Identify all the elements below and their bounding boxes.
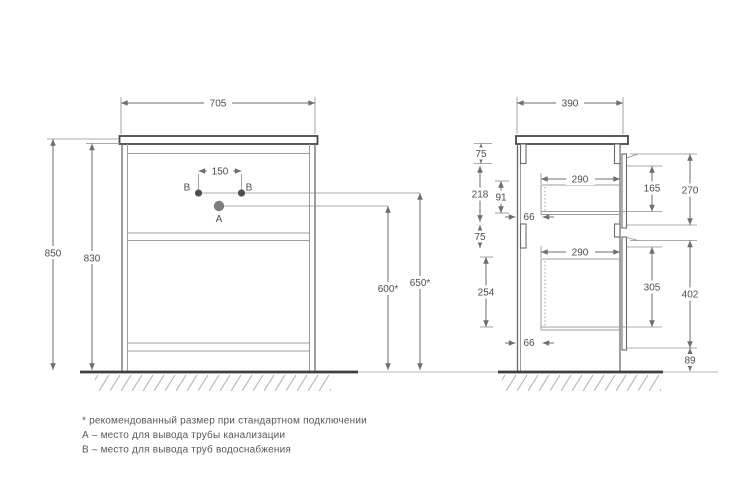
dim-upper-front-inner: 165 [621, 166, 665, 212]
dim-label-650: 650* [410, 278, 431, 289]
dim-label-66-top: 66 [523, 212, 535, 223]
side-countertop [516, 136, 628, 144]
dim-drain-height: 600* [373, 206, 403, 370]
dim-label-600: 600* [378, 284, 399, 295]
floor-line [80, 372, 718, 391]
ground-hatching-side [502, 374, 661, 391]
dim-label-150: 150 [212, 167, 229, 178]
dim-label-402: 402 [682, 290, 699, 301]
dim-label-75-top: 75 [475, 149, 487, 160]
side-rail-top-right [615, 144, 621, 164]
dim-supply-height: 650* [405, 193, 435, 370]
dim-bottom-gap: 89 [681, 348, 700, 371]
outlet-points: В В А [184, 183, 420, 226]
dim-outlet-spacing: 150 [199, 165, 242, 189]
vanity-dimension-drawing: 705 850 830 150 В В А 600* 650* [0, 0, 750, 500]
ground-hatching-front [95, 374, 331, 391]
point-b-right-marker [238, 189, 245, 196]
dim-top-rail: 75 [473, 144, 492, 164]
point-b-left-marker [195, 189, 202, 196]
dim-label-290-bottom: 290 [572, 248, 589, 259]
dim-label-165: 165 [644, 184, 661, 195]
dim-offset-lower: 66 [505, 338, 554, 349]
side-rail-mid-left [521, 224, 527, 248]
dim-label-218: 218 [472, 190, 489, 201]
point-b-left-label: В [184, 183, 191, 194]
dim-label-390: 390 [562, 99, 579, 110]
dim-lower-front: 402 [627, 241, 703, 349]
dim-mid-rail: 75 [472, 225, 488, 248]
dim-upper-drawer-depth: 290 [541, 173, 620, 186]
dim-label-830: 830 [84, 254, 101, 265]
point-a-label: А [216, 214, 223, 225]
dim-label-290-top: 290 [572, 175, 589, 186]
dim-label-305: 305 [644, 283, 661, 294]
dim-label-75-mid: 75 [474, 232, 486, 243]
dim-label-254: 254 [478, 288, 495, 299]
side-rail-top-left [521, 144, 527, 164]
lower-drawer-front [622, 237, 627, 350]
dim-label-66-bottom: 66 [523, 338, 535, 349]
dim-upper-drawer-height: 91 [493, 181, 510, 213]
dim-upper-section: 218 [467, 166, 493, 222]
technical-drawing-page: 705 850 830 150 В В А 600* 650* [0, 0, 750, 500]
dim-side-depth: 390 [517, 97, 623, 134]
dim-label-91: 91 [495, 193, 507, 204]
dim-offset-upper: 66 [505, 212, 554, 223]
dim-lower-front-inner: 305 [621, 247, 665, 327]
footnote-point-b: В – место для вывода труб водоснабжения [82, 444, 291, 456]
side-rail-mid-right [615, 224, 621, 237]
front-countertop [120, 136, 318, 144]
dim-lower-drawer-height: 254 [473, 257, 499, 327]
point-b-right-label: В [246, 183, 253, 194]
dim-lower-drawer-depth: 290 [541, 246, 620, 259]
dim-front-width: 705 [121, 97, 315, 134]
footnote-recommended-size: * рекомендованный размер при стандартном… [82, 416, 367, 427]
footnotes: * рекомендованный размер при стандартном… [82, 416, 367, 456]
dim-label-270: 270 [682, 186, 699, 197]
dim-front-height-carcass: 830 [79, 144, 120, 371]
dim-label-850: 850 [45, 249, 62, 260]
upper-drawer-front [622, 154, 627, 228]
point-a-marker [214, 201, 224, 211]
dim-label-89: 89 [684, 356, 696, 367]
footnote-point-a: А – место для вывода трубы канализации [82, 429, 285, 441]
dim-label-705: 705 [210, 99, 227, 110]
